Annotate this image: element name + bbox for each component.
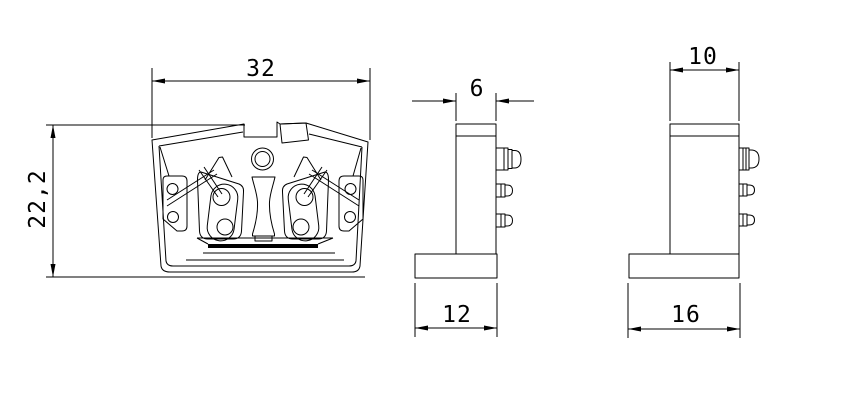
dimension-front-width: 32	[152, 56, 370, 140]
front-inner-top-right	[309, 134, 362, 147]
dimension-end-base-width: 16	[628, 283, 740, 338]
arrowhead	[51, 125, 56, 138]
arrowhead	[51, 264, 56, 277]
arrowhead	[726, 68, 739, 73]
dim-label-side-top-width: 6	[470, 76, 485, 102]
front-roof-tab	[280, 123, 309, 143]
side-base-foot	[415, 254, 497, 278]
front-view	[152, 122, 368, 272]
dim-label-front-width: 32	[246, 56, 276, 82]
side-body	[456, 124, 496, 254]
front-corner-funnel-left	[160, 147, 169, 176]
right-slot-hole-bottom	[293, 219, 309, 235]
arrowhead	[484, 326, 497, 331]
arrowhead	[670, 68, 683, 73]
left-side-plate	[163, 176, 187, 231]
right-plate-hole-bottom	[345, 212, 356, 223]
busbar	[208, 244, 318, 248]
left-plate-hole-top	[167, 184, 178, 195]
left-plate-hole-bottom	[168, 212, 179, 223]
dimension-side-base-width: 12	[415, 283, 497, 337]
front-corner-funnel-right	[353, 148, 361, 176]
three-view-technical-drawing: 32 22,2 6 12 10	[0, 0, 855, 420]
side-pin-middle	[496, 184, 513, 197]
drawing-sheet: 32 22,2 6 12 10	[0, 0, 855, 420]
dim-label-end-top-width: 10	[688, 44, 718, 70]
right-slot-capsule	[287, 183, 321, 243]
arrowhead	[496, 99, 509, 104]
arrowhead	[628, 327, 641, 332]
dimension-front-height: 22,2	[25, 125, 365, 277]
arrowhead	[152, 79, 165, 84]
end-view	[629, 124, 759, 278]
side-pin-bottom	[496, 214, 513, 227]
end-pin-bottom	[739, 214, 755, 226]
side-view	[415, 124, 521, 278]
right-slot-hole-top	[296, 189, 313, 206]
front-inner-top-left	[159, 132, 243, 146]
center-hole-inner	[255, 152, 270, 167]
end-pin-top	[739, 148, 759, 170]
right-wing-rib	[294, 157, 321, 180]
front-outer-outline	[152, 122, 368, 272]
left-wing-rib	[205, 157, 232, 180]
center-divider-column	[252, 177, 275, 236]
end-body	[670, 124, 739, 254]
arrowhead	[443, 99, 456, 104]
dimension-end-top-width: 10	[670, 44, 739, 121]
left-slot-capsule	[206, 183, 240, 243]
dimension-side-top-width: 6	[412, 76, 534, 121]
dim-label-end-base-width: 16	[671, 302, 701, 328]
dim-label-side-base-width: 12	[442, 302, 472, 328]
dim-label-front-height: 22,2	[25, 169, 51, 228]
end-base-foot	[629, 254, 739, 278]
left-slot-hole-top	[213, 189, 230, 206]
left-slot-hole-bottom	[217, 219, 233, 235]
right-plate-hole-top	[345, 184, 356, 195]
arrowhead	[357, 79, 370, 84]
end-pin-middle	[739, 184, 755, 196]
side-pin-top	[496, 148, 521, 170]
arrowhead	[415, 326, 428, 331]
arrowhead	[727, 327, 740, 332]
